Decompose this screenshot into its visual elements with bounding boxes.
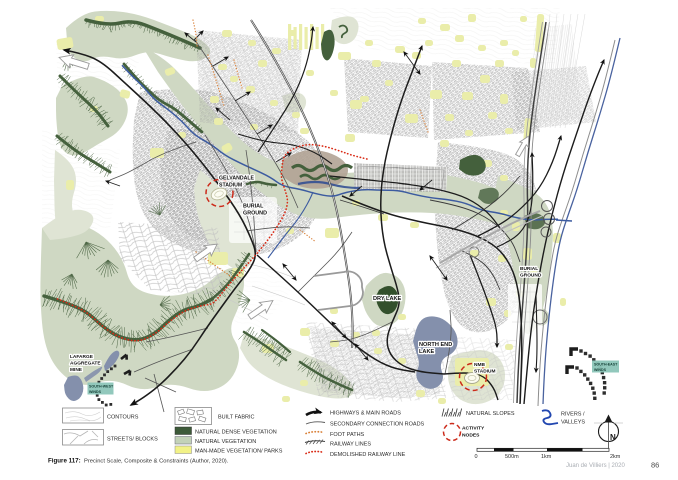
svg-text:SOUTH-WEST: SOUTH-WEST	[89, 385, 114, 389]
svg-text:CONTOURS: CONTOURS	[107, 415, 139, 421]
svg-text:GROUND: GROUND	[520, 272, 542, 278]
svg-text:NATURAL VEGETATION: NATURAL VEGETATION	[195, 439, 256, 445]
svg-text:AGGREGATE: AGGREGATE	[70, 361, 101, 367]
svg-text:Precinct Scale, Composite & Co: Precinct Scale, Composite & Constraints …	[84, 459, 229, 465]
svg-text:GROUND: GROUND	[243, 211, 267, 217]
svg-text:BUILT FABRIC: BUILT FABRIC	[218, 415, 255, 421]
svg-text:RIVERS /: RIVERS /	[561, 412, 585, 418]
svg-text:MINE: MINE	[70, 367, 83, 373]
svg-text:BURIAL: BURIAL	[243, 204, 264, 210]
svg-text:RAILWAY LINES: RAILWAY LINES	[330, 442, 371, 448]
svg-text:LAFARGE: LAFARGE	[70, 354, 94, 360]
svg-text:NATURAL SLOPES: NATURAL SLOPES	[466, 411, 515, 417]
svg-text:0: 0	[475, 454, 478, 460]
svg-text:DRY LAKE: DRY LAKE	[373, 296, 402, 302]
svg-text:SOUTH-EAST: SOUTH-EAST	[594, 363, 618, 367]
svg-text:2km: 2km	[610, 454, 621, 460]
svg-text:WINDS: WINDS	[594, 368, 607, 372]
svg-text:BURIAL: BURIAL	[520, 266, 538, 272]
svg-text:Figure 117:: Figure 117:	[48, 458, 81, 465]
svg-text:LAKE: LAKE	[419, 349, 434, 355]
svg-text:86: 86	[651, 461, 659, 470]
svg-text:GELVANDALE: GELVANDALE	[219, 176, 255, 182]
svg-text:NORTH END: NORTH END	[419, 342, 452, 348]
svg-text:NATURAL DENSE VEGETATION: NATURAL DENSE VEGETATION	[195, 430, 277, 436]
svg-text:Juan de Villiers | 2020: Juan de Villiers | 2020	[566, 463, 625, 469]
svg-text:NMB: NMB	[474, 362, 485, 368]
svg-text:ACTIVITY: ACTIVITY	[462, 426, 485, 432]
svg-text:DEMOLISHED RAILWAY LINE: DEMOLISHED RAILWAY LINE	[330, 452, 406, 458]
svg-text:500m: 500m	[505, 454, 519, 460]
svg-text:N: N	[610, 433, 616, 442]
svg-text:NODES: NODES	[462, 433, 480, 439]
svg-text:1km: 1km	[541, 454, 552, 460]
svg-text:STADIUM: STADIUM	[219, 182, 242, 188]
svg-text:SECONDARY CONNECTION ROADS: SECONDARY CONNECTION ROADS	[330, 422, 425, 428]
svg-text:WINDS: WINDS	[89, 390, 102, 394]
svg-text:STREETS/ BLOCKS: STREETS/ BLOCKS	[107, 437, 158, 443]
svg-text:STADIUM: STADIUM	[474, 368, 496, 374]
svg-text:VALLEYS: VALLEYS	[561, 420, 585, 426]
svg-text:FOOT PATHS: FOOT PATHS	[330, 432, 365, 438]
svg-text:MAN-MADE VEGETATION/ PARKS: MAN-MADE VEGETATION/ PARKS	[195, 449, 283, 455]
svg-text:HIGHWAYS & MAIN ROADS: HIGHWAYS & MAIN ROADS	[330, 411, 401, 417]
